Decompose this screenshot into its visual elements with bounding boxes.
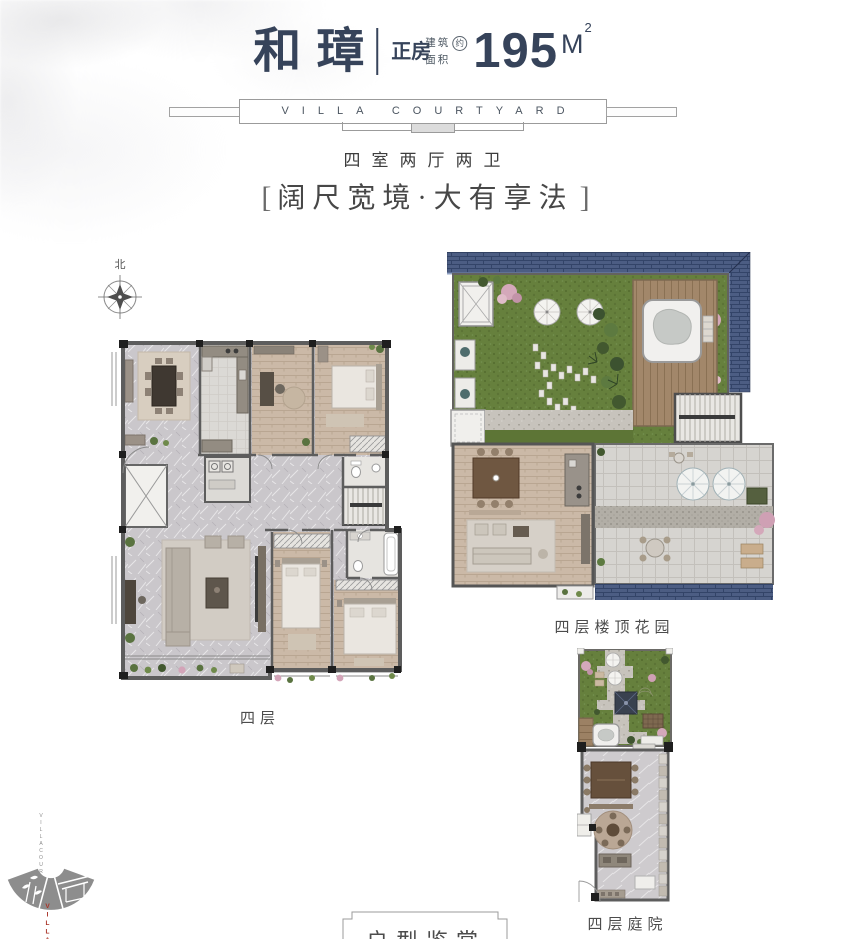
courtyard-spa bbox=[593, 724, 619, 746]
hedge-strip bbox=[485, 430, 633, 443]
brand-red-villa: VILLA bbox=[44, 903, 51, 939]
long-table bbox=[584, 762, 639, 798]
round-dining-set bbox=[594, 811, 632, 849]
area-unit: M2 bbox=[561, 29, 591, 60]
pavilion bbox=[615, 692, 637, 714]
floor-mat bbox=[635, 876, 655, 889]
banner-chip bbox=[411, 123, 455, 133]
fan-logo-icon bbox=[6, 862, 96, 914]
courtyard-plan bbox=[577, 648, 673, 906]
slogan-text: 阔尺宽境·大有享法 bbox=[277, 183, 573, 214]
staircase bbox=[343, 487, 387, 525]
main-floor-plan bbox=[110, 340, 405, 685]
house-type-label: 正房 bbox=[391, 40, 414, 64]
banner-text: VILLA COURTYARD bbox=[239, 99, 607, 124]
approx-badge: 约 bbox=[452, 36, 467, 51]
gravel-path bbox=[485, 410, 633, 430]
area-value: 195 bbox=[473, 27, 558, 76]
banner-ribbon: VILLA COURTYARD bbox=[162, 97, 682, 135]
terrace-roof-edge bbox=[595, 584, 773, 600]
roof-staircase bbox=[675, 394, 741, 442]
roof-garden-plan bbox=[447, 252, 777, 602]
roof-interior-room bbox=[453, 444, 593, 599]
area-unit-exponent: 2 bbox=[585, 20, 592, 35]
area-label-line1: 建筑 bbox=[425, 35, 450, 51]
floorplan-poster: 和璋 正房 建筑 面积 约 195 M2 VILLA COURTYARD 四室两… bbox=[0, 0, 844, 939]
brand-line-villa: VILLA bbox=[38, 813, 44, 848]
elevator-shaft bbox=[125, 465, 167, 527]
title-divider bbox=[376, 28, 378, 75]
roof-utility-room bbox=[451, 410, 485, 446]
slogan: [阔尺宽境·大有享法] bbox=[0, 176, 844, 216]
banner-left-bar bbox=[169, 107, 240, 117]
bay-windows bbox=[274, 672, 398, 683]
slogan-bracket-right: ] bbox=[580, 181, 590, 214]
room-layout-text: 四室两厅两卫 bbox=[0, 146, 844, 171]
slogan-bracket-left: [ bbox=[261, 181, 271, 214]
skylight bbox=[459, 282, 493, 326]
bench-row bbox=[589, 804, 633, 809]
roof-garden-label: 四层楼顶花园 bbox=[447, 616, 777, 637]
footer-section-title: 户型鉴赏 bbox=[0, 924, 844, 939]
title-row: 和璋 正房 建筑 面积 约 195 M2 bbox=[253, 27, 591, 76]
compass-icon bbox=[96, 270, 144, 324]
area-label-line2: 面积 bbox=[425, 52, 450, 68]
project-name: 和璋 bbox=[253, 28, 379, 76]
banner-right-bar bbox=[606, 107, 677, 117]
courtyard-deck bbox=[579, 718, 593, 746]
main-floor-label: 四层 bbox=[110, 707, 405, 728]
area-label: 建筑 面积 bbox=[425, 35, 450, 68]
mosaic-band bbox=[595, 506, 773, 528]
